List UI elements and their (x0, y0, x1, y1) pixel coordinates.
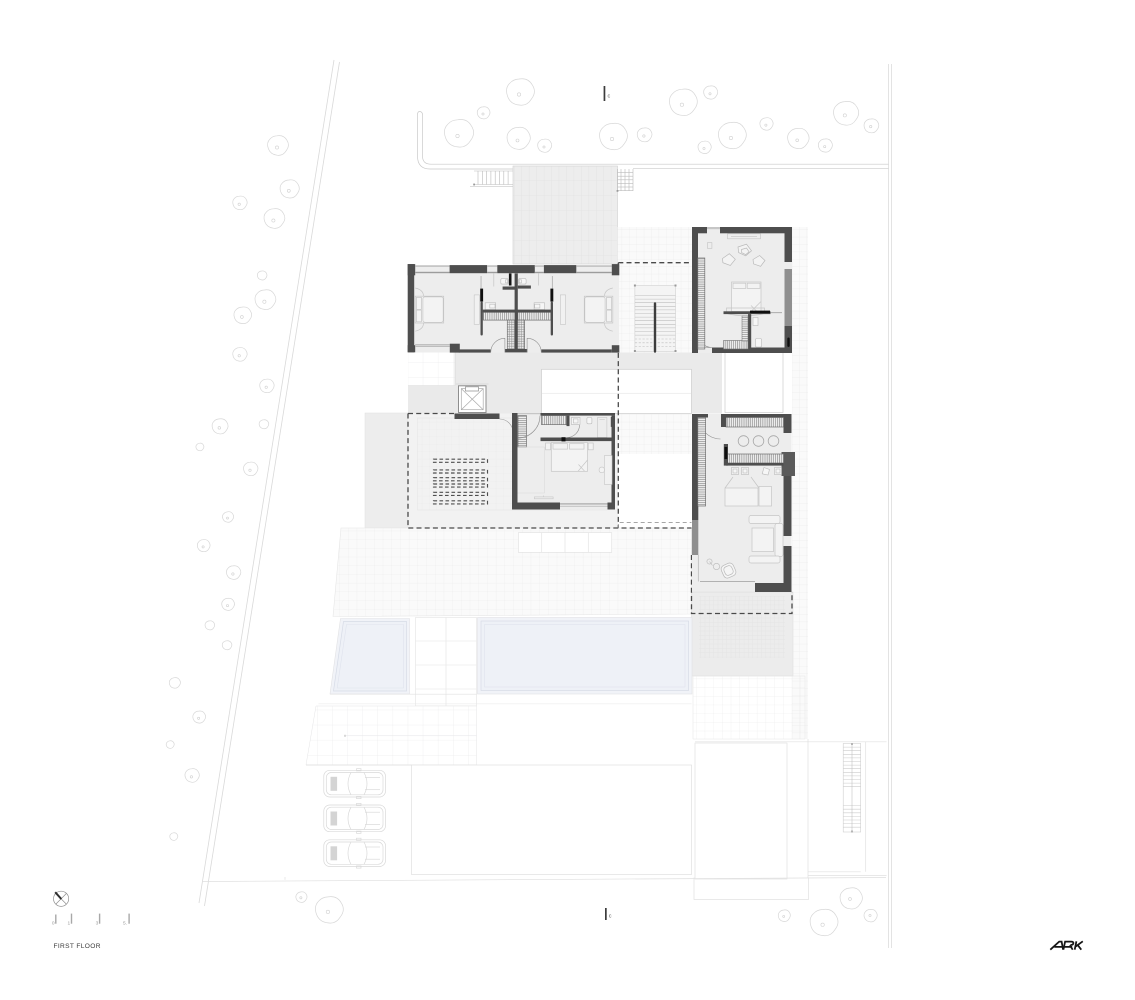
svg-text:FIRST FLOOR: FIRST FLOOR (54, 943, 101, 950)
svg-text:3: 3 (96, 921, 99, 927)
svg-text:c: c (609, 914, 612, 920)
svg-text:1: 1 (68, 921, 71, 927)
svg-text:5.: 5. (123, 921, 127, 927)
svg-text:0: 0 (52, 921, 55, 927)
svg-text:c: c (608, 94, 611, 100)
